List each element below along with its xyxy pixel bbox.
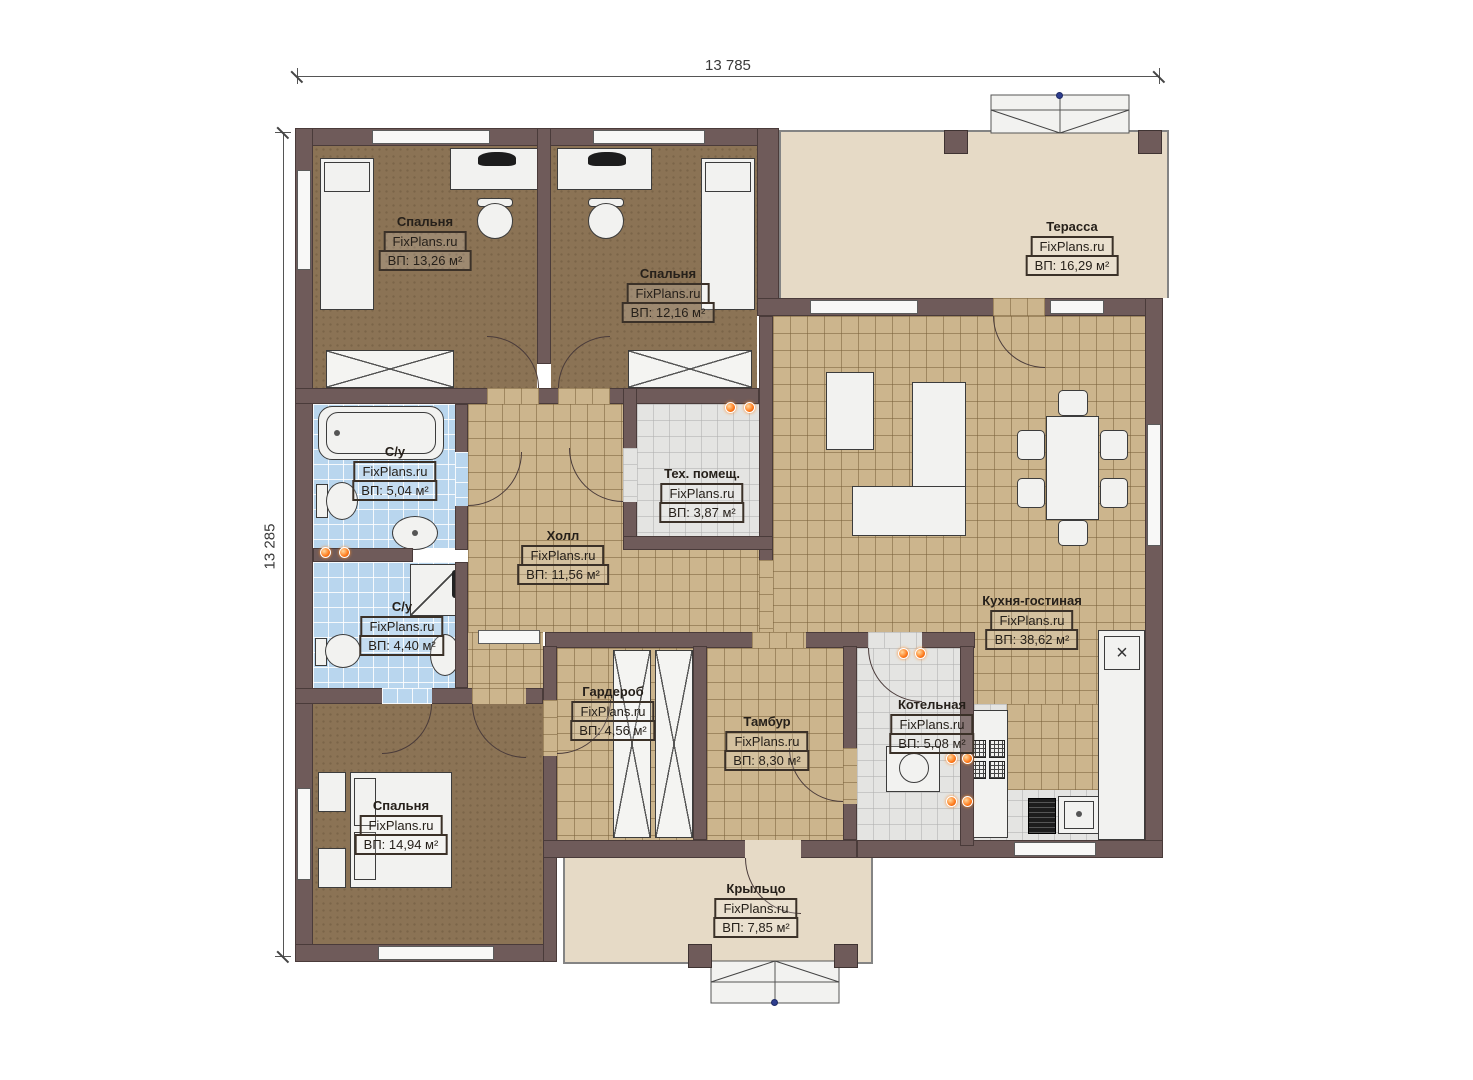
dimension-line-top [297, 76, 1160, 77]
wall [757, 128, 779, 300]
room-label-wardrobe: Гардероб FixPlans.ru ВП: 4,56 м² [570, 684, 655, 741]
room-name: Крыльцо [726, 881, 785, 896]
door-opening [472, 688, 526, 704]
window [810, 300, 918, 314]
dishwasher [1028, 798, 1056, 834]
window [1050, 300, 1104, 314]
door-opening [993, 298, 1045, 316]
door-opening [843, 748, 857, 804]
desk-monitor [588, 152, 626, 166]
wall [843, 646, 857, 840]
room-brand: FixPlans.ru [360, 616, 443, 637]
dimension-left-label: 13 285 [262, 517, 279, 577]
porch-stairs [710, 960, 840, 1004]
room-brand: FixPlans.ru [353, 461, 436, 482]
wall-lamp [915, 648, 926, 659]
room-name: Спальня [640, 266, 696, 281]
dining-chair [1100, 430, 1128, 460]
room-area: ВП: 5,04 м² [352, 480, 437, 501]
room-brand: FixPlans.ru [1030, 236, 1113, 257]
room-area: ВП: 8,30 м² [724, 750, 809, 771]
office-chair [588, 203, 624, 239]
wall [693, 646, 707, 840]
window [378, 946, 494, 960]
room-area: ВП: 13,26 м² [379, 250, 472, 271]
door-opening [623, 448, 637, 502]
window [372, 130, 490, 144]
room-area: ВП: 7,85 м² [713, 917, 798, 938]
window [593, 130, 705, 144]
room-brand: FixPlans.ru [725, 731, 808, 752]
wardrobe-cabinet [613, 650, 651, 838]
room-brand: FixPlans.ru [990, 610, 1073, 631]
dimension-top-label: 13 785 [705, 57, 751, 74]
terrace-stairs [990, 94, 1130, 134]
toilet [325, 634, 361, 668]
kitchen-floor-patch [1007, 704, 1103, 790]
room-name: Терасса [1046, 219, 1098, 234]
room-area: ВП: 4,40 м² [359, 635, 444, 656]
window [1147, 424, 1161, 546]
room-label-bath-2: С/у FixPlans.ru ВП: 4,40 м² [359, 599, 444, 656]
room-label-terrace: Терасса FixPlans.ru ВП: 16,29 м² [1026, 219, 1119, 276]
room-name: Котельная [898, 697, 966, 712]
dining-chair [1017, 430, 1045, 460]
sofa [852, 486, 966, 536]
door-opening [752, 632, 806, 648]
room-brand: FixPlans.ru [383, 231, 466, 252]
room-brand: FixPlans.ru [626, 283, 709, 304]
floor-plan: 13 785 13 285 [0, 0, 1473, 1080]
wall-lamp [946, 753, 957, 764]
wall [623, 536, 773, 550]
room-area: ВП: 5,08 м² [889, 733, 974, 754]
door-opening [543, 700, 557, 756]
dining-chair [1100, 478, 1128, 508]
room-name: Спальня [373, 798, 429, 813]
wall [455, 562, 468, 688]
column [944, 130, 968, 154]
column [834, 944, 858, 968]
dimension-line-left [283, 132, 284, 956]
room-area: ВП: 14,94 м² [355, 834, 448, 855]
door-opening [868, 632, 922, 648]
room-brand: FixPlans.ru [521, 545, 604, 566]
room-label-bedroom-3: Спальня FixPlans.ru ВП: 14,94 м² [355, 798, 448, 855]
room-label-bath-1: С/у FixPlans.ru ВП: 5,04 м² [352, 444, 437, 501]
room-name: Холл [547, 528, 580, 543]
wall-lamp [339, 547, 350, 558]
nightstand [318, 848, 346, 888]
room-area: ВП: 16,29 м² [1026, 255, 1119, 276]
room-name: Тех. помещ. [664, 466, 740, 481]
room-label-bedroom-1: Спальня FixPlans.ru ВП: 13,26 м² [379, 214, 472, 271]
wall-lamp [962, 753, 973, 764]
wardrobe-cabinet [326, 350, 454, 388]
room-name: Спальня [397, 214, 453, 229]
room-brand: FixPlans.ru [714, 898, 797, 919]
room-name: С/у [392, 599, 412, 614]
dining-table [1046, 416, 1099, 520]
wall-lamp [725, 402, 736, 413]
wall-lamp [962, 796, 973, 807]
dining-chair [1058, 520, 1088, 546]
passage-opening [478, 630, 540, 644]
room-area: ВП: 11,56 м² [517, 564, 609, 585]
room-area: ВП: 3,87 м² [659, 502, 744, 523]
wardrobe-cabinet [628, 350, 752, 388]
wall-lamp [320, 547, 331, 558]
bed-pillow [705, 162, 751, 192]
wall-lamp [898, 648, 909, 659]
room-label-tech-room: Тех. помещ. FixPlans.ru ВП: 3,87 м² [659, 466, 744, 523]
desk-monitor [478, 152, 516, 166]
bed-pillow [324, 162, 370, 192]
window [1014, 842, 1096, 856]
dining-chair [1058, 390, 1088, 416]
room-label-hall: Холл FixPlans.ru ВП: 11,56 м² [517, 528, 609, 585]
door-opening [558, 388, 610, 404]
wardrobe-cabinet [655, 650, 693, 838]
room-brand: FixPlans.ru [571, 701, 654, 722]
wall-lamp [946, 796, 957, 807]
stairs-direction-marker [1056, 92, 1063, 99]
door-opening [487, 388, 539, 404]
sink-drain [1076, 811, 1082, 817]
door-opening [745, 840, 801, 858]
office-chair [477, 203, 513, 239]
room-label-tambour: Тамбур FixPlans.ru ВП: 8,30 м² [724, 714, 809, 771]
washing-machine-drum [899, 753, 929, 783]
room-name: С/у [385, 444, 405, 459]
room-label-porch: Крыльцо FixPlans.ru ВП: 7,85 м² [713, 881, 798, 938]
room-brand: FixPlans.ru [890, 714, 973, 735]
dining-chair [1017, 478, 1045, 508]
wall [537, 128, 551, 364]
door-opening [382, 688, 432, 704]
room-area: ВП: 4,56 м² [570, 720, 655, 741]
sink-drain [412, 530, 418, 536]
tv-stand [826, 372, 874, 450]
column [1138, 130, 1162, 154]
wall [1145, 298, 1163, 858]
room-label-boiler: Котельная FixPlans.ru ВП: 5,08 м² [889, 697, 974, 754]
fridge-x-symbol: × [1104, 636, 1140, 670]
stairs-direction-marker [771, 999, 778, 1006]
wall [543, 646, 557, 962]
stove-burner [989, 740, 1005, 758]
room-area: ВП: 38,62 м² [986, 629, 1079, 650]
room-label-kitchen: Кухня-гостиная FixPlans.ru ВП: 38,62 м² [982, 593, 1082, 650]
wall-lamp [744, 402, 755, 413]
wall [857, 840, 1163, 858]
room-name: Кухня-гостиная [982, 593, 1082, 608]
room-name: Тамбур [743, 714, 790, 729]
room-area: ВП: 12,16 м² [622, 302, 715, 323]
room-brand: FixPlans.ru [359, 815, 442, 836]
column [688, 944, 712, 968]
room-brand: FixPlans.ru [660, 483, 743, 504]
nightstand [318, 772, 346, 812]
door-opening [455, 452, 468, 506]
window [297, 170, 311, 270]
window [297, 788, 311, 880]
passage-opening [759, 560, 773, 632]
wall [543, 840, 857, 858]
bathtub-drain [334, 430, 340, 436]
room-name: Гардероб [582, 684, 643, 699]
room-label-bedroom-2: Спальня FixPlans.ru ВП: 12,16 м² [622, 266, 715, 323]
stove-burner [989, 761, 1005, 779]
